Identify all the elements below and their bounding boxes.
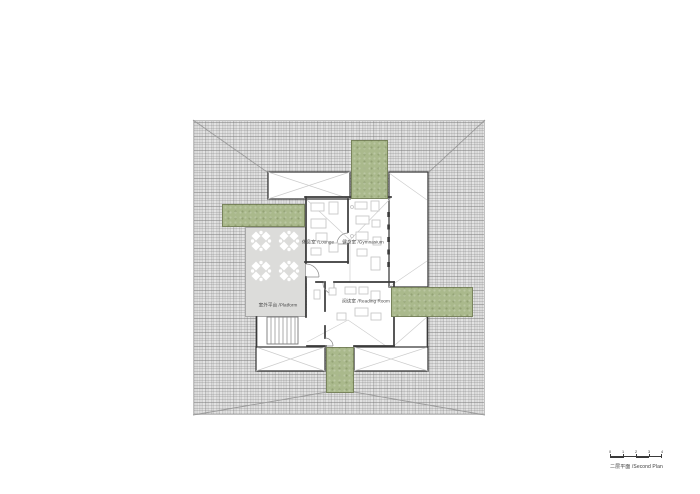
scale-bar: 0 1 2 3 4: [610, 450, 662, 460]
furniture-reading-room: [314, 287, 381, 320]
plan-title: 二层平面 /Second Plan: [610, 464, 663, 470]
green-roof-patch-left: [222, 204, 305, 227]
room-label-reading-room: 阅读室 /Reading Room: [342, 299, 390, 304]
green-roof-patch-bottom: [326, 347, 354, 393]
room-label-gymnasium: 健身室 /Gymnasium: [342, 240, 384, 245]
platform-table-sets: [251, 231, 299, 281]
room-label-platform: 室外平台 /Platform: [259, 303, 298, 308]
floor-plan-canvas: 休息室 /Lounge 健身室 /Gymnasium 阅读室 /Reading …: [0, 0, 700, 494]
room-label-lounge: 休息室 /Lounge: [302, 240, 334, 245]
plan-linework: [0, 0, 700, 494]
furniture-gymnasium: [351, 201, 382, 270]
green-roof-patch-right: [391, 287, 473, 317]
scale-bar-segments: [610, 456, 662, 458]
green-roof-patch-top: [351, 140, 388, 199]
stairs: [267, 317, 298, 344]
furniture-lounge: [311, 202, 338, 255]
